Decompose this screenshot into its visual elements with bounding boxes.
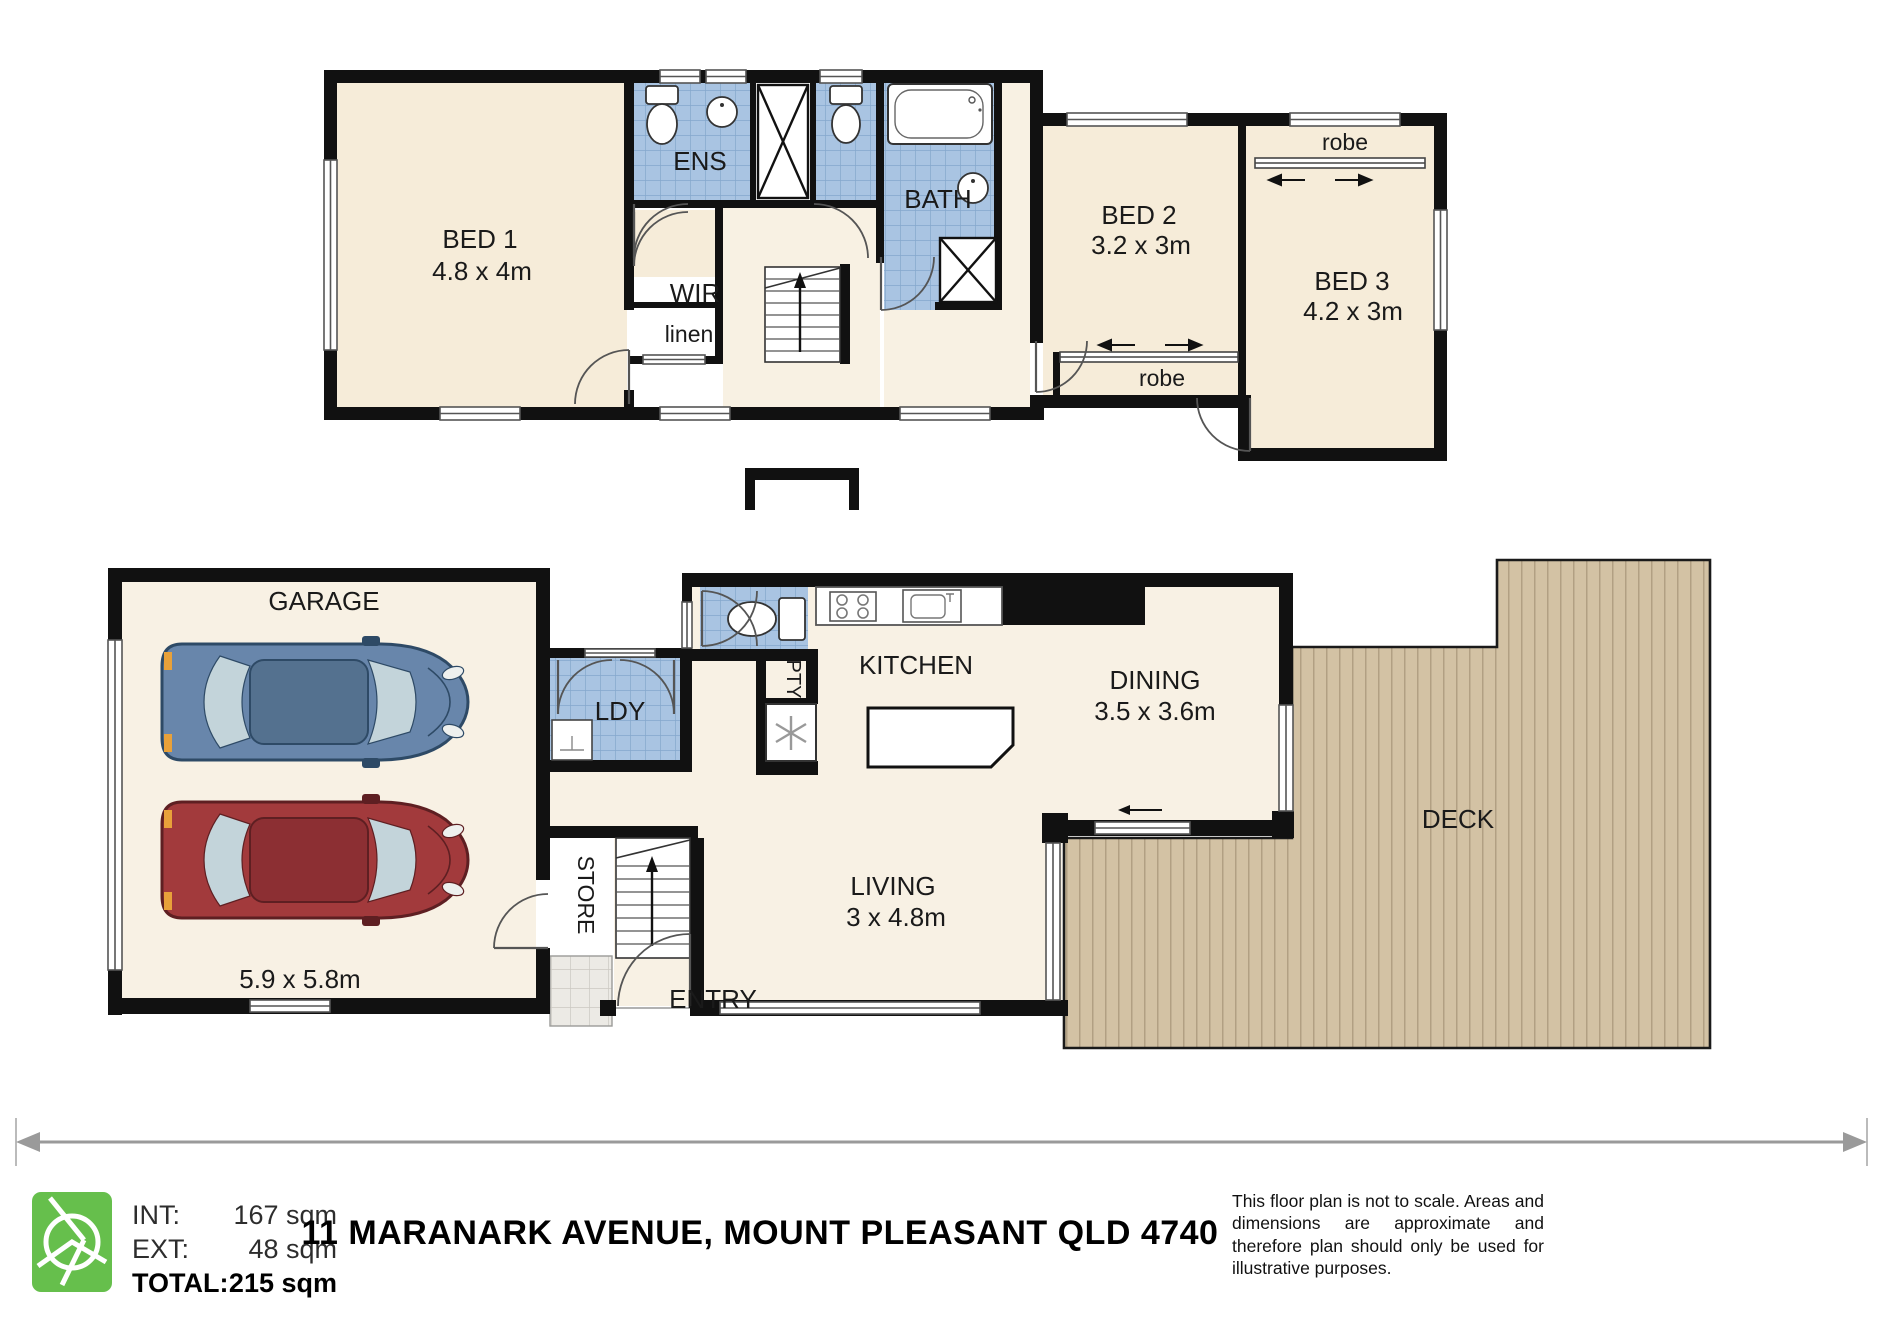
- cooktop-icon: [830, 592, 876, 621]
- bed2-robe-label: robe: [1139, 365, 1185, 391]
- deck-label: DECK: [1422, 804, 1495, 834]
- area-total-row: TOTAL: 215 sqm: [132, 1266, 337, 1300]
- upper-hall-bath: [884, 310, 1030, 407]
- dining-label: DINING: [1110, 665, 1201, 695]
- bed1-label: BED 1: [442, 224, 517, 254]
- scale-arrow-left: [16, 1132, 40, 1152]
- agency-logo: [32, 1192, 112, 1292]
- living-label: LIVING: [850, 871, 935, 901]
- linen-label: linen: [665, 321, 714, 347]
- ens-toilet-icon: [646, 86, 678, 144]
- car-blue: [162, 636, 468, 768]
- property-address: 11 MARANARK AVENUE, MOUNT PLEASANT QLD 4…: [280, 1214, 1240, 1253]
- exterior-notch: [548, 587, 682, 655]
- scale-bar: [16, 1118, 1867, 1166]
- bath-basin-tap: [971, 179, 975, 183]
- laundry-label: LDY: [595, 696, 646, 726]
- bed3-robe-label: robe: [1322, 129, 1368, 155]
- living-dims: 3 x 4.8m: [846, 902, 946, 932]
- upper-floor: BED 1 4.8 x 4m ENS WIR linen BATH BED 2 …: [324, 70, 1447, 461]
- stairs-lower: [616, 838, 690, 958]
- wc-upper-toilet-icon: [830, 86, 862, 143]
- entry-label: ENTRY: [669, 984, 757, 1014]
- bed3-label: BED 3: [1314, 266, 1389, 296]
- stairs-upper: [765, 267, 840, 362]
- area-int-label: INT:: [132, 1198, 180, 1232]
- void-above-wc: [755, 480, 851, 573]
- ens-label: ENS: [673, 146, 726, 176]
- ens-shower-icon: [758, 85, 808, 198]
- lower-floor: DECK: [108, 468, 1710, 1048]
- store-label: STORE: [573, 856, 599, 935]
- bed2-label: BED 2: [1101, 200, 1176, 230]
- bed3-dims: 4.2 x 3m: [1303, 296, 1403, 326]
- bathtub-icon: [888, 84, 992, 144]
- area-total-label: TOTAL:: [132, 1266, 228, 1300]
- bed1-dims: 4.8 x 4m: [432, 256, 532, 286]
- car-red: [162, 794, 468, 926]
- garage-dims: 5.9 x 5.8m: [239, 964, 360, 994]
- scale-arrow-right: [1843, 1132, 1867, 1152]
- fridge-icon: [766, 704, 816, 761]
- bed2-dims: 3.2 x 3m: [1091, 230, 1191, 260]
- wir-label: WIR: [670, 278, 721, 308]
- kitchen-counter: [816, 587, 1002, 625]
- floorplan-drawing: BED 1 4.8 x 4m ENS WIR linen BATH BED 2 …: [0, 0, 1883, 1332]
- island-bench: [868, 708, 1013, 767]
- dining-dims: 3.5 x 3.6m: [1094, 696, 1215, 726]
- area-total-value: 215 sqm: [229, 1266, 337, 1300]
- garage-label: GARAGE: [268, 586, 379, 616]
- area-ext-label: EXT:: [132, 1232, 189, 1266]
- ens-basin-icon: [707, 97, 737, 127]
- kitchen-label: KITCHEN: [859, 650, 973, 680]
- floorplan-page: BED 1 4.8 x 4m ENS WIR linen BATH BED 2 …: [0, 0, 1883, 1332]
- bath-label: BATH: [904, 184, 971, 214]
- ens-basin-tap: [720, 103, 724, 107]
- bath-shower-icon: [940, 238, 996, 302]
- disclaimer-text: This floor plan is not to scale. Areas a…: [1232, 1190, 1544, 1280]
- wir-door-landing: [630, 210, 716, 277]
- pantry-label: PTY: [782, 660, 804, 699]
